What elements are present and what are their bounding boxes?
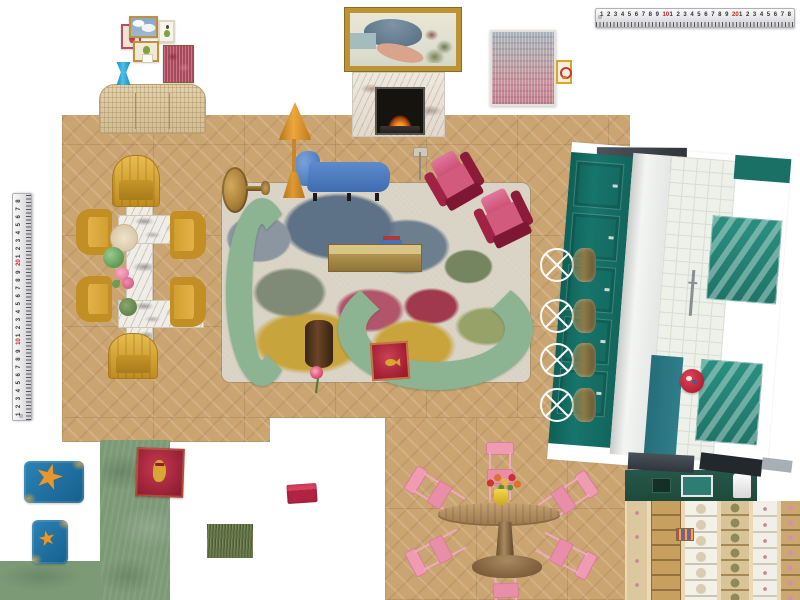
plan-color-box [677,529,693,540]
pear-motif [164,30,170,37]
green-curved-sofa[interactable] [226,198,298,386]
mini-framed-art[interactable] [556,60,572,84]
plan-cabinet-column [753,501,777,600]
teal-cabinet-top [734,155,792,183]
ruler-number: 1 [739,12,742,18]
goldfish-pillow[interactable] [370,341,411,382]
ruler-number: 2 [16,326,22,329]
stacked-books[interactable] [380,240,402,244]
yellow-armchair[interactable] [76,276,112,322]
plan-cabinet-column [781,501,800,600]
ruler-number: 9 [16,270,22,273]
ruler-number: 10 [663,12,670,18]
bar-stool[interactable] [540,246,598,286]
ruler-number: 4 [16,310,22,313]
ruler-number: 6 [16,215,22,218]
plan-cabinet-column [721,501,749,600]
gallery-frame-pear-pedestal[interactable] [133,41,159,62]
ruler-number: 3 [16,318,22,321]
chaise-body [307,162,392,192]
ruler-number: 8 [16,278,22,281]
firebox [375,87,425,135]
plan-sink [681,475,713,497]
ruler-number: 1 [16,255,22,258]
stool-wire-frame [540,343,574,377]
grey-slab [628,452,695,472]
chaise-leg [313,193,317,201]
bar-stool[interactable] [540,297,598,337]
grass-fringe-swatch[interactable] [207,524,253,558]
ruler-number: 3 [614,12,617,18]
ruler-number: 8 [788,12,791,18]
gallery-frame-sky-painting[interactable] [129,16,158,38]
stacked-books [383,236,400,240]
ruler-number: 3 [753,12,756,18]
ruler-number: 1 [670,12,673,18]
ruler-number: 2 [607,12,610,18]
pink-mosaic-artwork[interactable] [490,30,556,106]
ruler-number: 9 [16,349,22,352]
table-column [496,522,514,558]
starfish-icon: ★ [36,524,59,552]
moodboard-canvas: 123456789101234567892012345678 123456789… [0,0,800,600]
plan-cabinet-column [685,501,717,600]
fire-logs [380,126,420,133]
ruler-number: 8 [718,12,721,18]
wood-pedestal-table[interactable] [438,503,560,524]
door-seam [169,93,170,129]
reading-lamp-pole [419,152,421,180]
ruler-number: 6 [16,373,22,376]
pedestal-motif [142,54,153,63]
plan-cabinet-column [651,501,681,600]
ruler-number: 7 [16,365,22,368]
ruler-number: 7 [16,286,22,289]
blue-side-stool[interactable] [116,62,131,85]
ruler-number: 7 [642,12,645,18]
ruler-number: 4 [760,12,763,18]
kitchen-plan-render[interactable] [625,470,800,600]
pear-motif [143,46,150,54]
ruler-number: 2 [676,12,679,18]
ruler-number: 3 [683,12,686,18]
ruler-number: 9 [725,12,728,18]
table-base [472,555,542,578]
wood-stump-side-table[interactable] [305,320,333,368]
goldfish-motif [385,359,396,367]
bird-motif [166,25,169,29]
tiger-pillow[interactable] [135,447,185,498]
flower-leaf [112,280,120,288]
door-seam [135,93,136,129]
chair-seat [119,180,152,200]
chair-seat [426,480,452,510]
ruler-number: 5 [628,12,631,18]
plan-cabinetry [625,501,800,600]
rattan-sideboard[interactable] [99,84,206,134]
pink-flowers[interactable] [122,277,134,289]
chair-seat [548,537,573,567]
stool-wire-frame [540,299,574,333]
plan-green-counter [625,470,757,501]
tiger-motif [153,460,167,482]
stool-wire-frame [540,388,574,422]
ruler-number: 10 [16,338,22,345]
ruler-number: 6 [774,12,777,18]
ruler-number: 3 [16,397,22,400]
yellow-armchair[interactable] [112,155,160,207]
lamp-pole [292,139,296,175]
starfish-icon: ★ [29,454,69,501]
shrub-motif [422,23,454,63]
plastic-covered-cabinet [706,215,782,304]
ruler-scale: 123456789101234567892012345678 [595,8,795,28]
ruler-number: 5 [697,12,700,18]
olive-dish[interactable] [119,298,137,316]
green-fabric-swatch[interactable] [0,561,101,600]
blue-chaise-lounge[interactable] [295,149,392,201]
pink-rose[interactable] [310,366,323,379]
sea-motif [350,33,376,49]
red-folded-swatch[interactable] [286,483,317,504]
chair-seat [116,355,151,373]
orange-motif [562,76,567,79]
plastic-covered-cabinet [695,359,763,446]
ruler-number: 8 [16,199,22,202]
gallery-frame-red-abstract[interactable] [163,45,194,83]
ruler-number: 1 [16,334,22,337]
ruler-number: 20 [16,259,22,266]
plan-cooktop [652,478,671,493]
yellow-armchair[interactable] [108,333,158,379]
yellow-vase[interactable] [494,489,508,505]
wood-floor-swatch[interactable] [62,418,270,442]
ruler-number: 2 [16,405,22,408]
chair-seat [493,583,520,599]
gallery-frame-pear-bird[interactable] [158,20,175,43]
yellow-armchair[interactable] [170,277,206,327]
ruler-number: 1 [600,12,603,18]
island-drawer [573,160,624,210]
ruler-number: 2 [16,247,22,250]
ruler-number: 7 [781,12,784,18]
marble-fireplace[interactable] [352,72,445,137]
ruler-number: 6 [16,294,22,297]
ruler-number: 8 [649,12,652,18]
chaise-leg [347,193,351,201]
bar-stool[interactable] [540,341,598,381]
ruler-number: 4 [621,12,624,18]
ruler-number: 7 [16,207,22,210]
ruler-number: 9 [656,12,659,18]
vertical-ruler[interactable]: 123456789101234567892012345678 [12,195,30,421]
ruler-number: 8 [16,357,22,360]
plan-stand-mixer [733,473,751,498]
stool-wire-frame [540,248,574,282]
ruler-number: 20 [732,12,739,18]
landscape-painting[interactable] [345,8,461,71]
horizontal-ruler[interactable]: 123456789101234567892012345678 [595,8,793,26]
brass-table-finial [261,181,270,195]
yellow-armchair[interactable] [170,211,206,259]
ruler-number: 2 [746,12,749,18]
plan-cabinet-column [627,501,647,600]
ruler-number: 5 [767,12,770,18]
ruler-number: 5 [16,302,22,305]
green-bowl[interactable] [103,247,124,268]
brass-pedestal-table[interactable] [222,167,248,213]
red-round-plate[interactable] [680,369,704,393]
ruler-number: 3 [16,239,22,242]
starfish-pillow-large[interactable]: ★ [24,461,84,503]
stool-bent-seat [572,388,596,422]
ruler-number: 6 [635,12,638,18]
chair-seat [428,534,453,564]
ruler-number: 4 [690,12,693,18]
ruler-number: 1 [16,413,22,416]
bar-stool[interactable] [540,386,598,426]
ruler-number: 4 [16,231,22,234]
green-curved-sofa[interactable] [338,268,533,390]
brass-coffee-table[interactable] [328,244,422,272]
chaise-leg [375,193,379,201]
stool-bent-seat [572,248,596,282]
ruler-number: 5 [16,381,22,384]
stool-bent-seat [572,343,596,377]
ruler-scale: 123456789101234567892012345678 [12,193,32,421]
starfish-pillow-small[interactable]: ★ [32,520,68,564]
ruler-number: 4 [16,389,22,392]
stool-bent-seat [572,299,596,333]
ruler-number: 5 [16,223,22,226]
ruler-number: 7 [711,12,714,18]
ruler-number: 6 [704,12,707,18]
